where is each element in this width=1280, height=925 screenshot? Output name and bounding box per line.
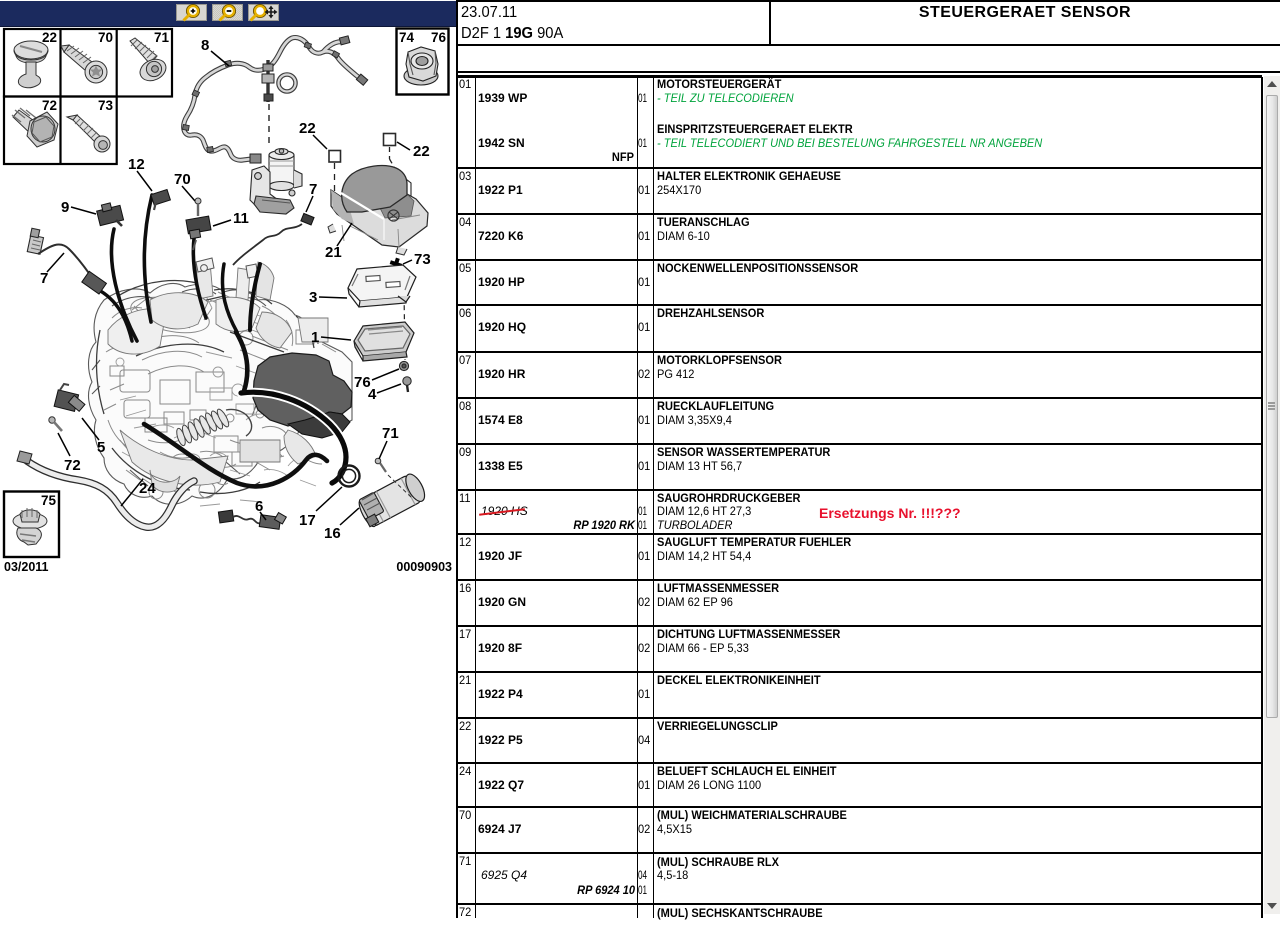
svg-text:22: 22 bbox=[299, 120, 316, 137]
svg-text:11: 11 bbox=[233, 210, 249, 227]
svg-text:8: 8 bbox=[201, 37, 209, 54]
svg-text:03/2011: 03/2011 bbox=[4, 560, 49, 574]
svg-text:1: 1 bbox=[311, 329, 319, 346]
svg-text:7: 7 bbox=[40, 270, 48, 287]
svg-text:16: 16 bbox=[324, 525, 341, 542]
svg-text:70: 70 bbox=[98, 30, 113, 45]
svg-text:76: 76 bbox=[431, 30, 447, 45]
svg-text:22: 22 bbox=[413, 143, 430, 160]
svg-text:71: 71 bbox=[154, 30, 170, 45]
svg-text:70: 70 bbox=[174, 171, 191, 188]
svg-text:00090903: 00090903 bbox=[396, 560, 452, 574]
svg-text:17: 17 bbox=[299, 512, 316, 529]
svg-text:3: 3 bbox=[309, 289, 317, 306]
svg-text:71: 71 bbox=[382, 425, 399, 442]
svg-text:22: 22 bbox=[42, 30, 57, 45]
svg-text:5: 5 bbox=[97, 439, 105, 456]
svg-text:24: 24 bbox=[139, 480, 156, 497]
svg-text:73: 73 bbox=[98, 98, 114, 113]
svg-text:4: 4 bbox=[368, 386, 377, 403]
svg-text:7: 7 bbox=[309, 181, 317, 198]
svg-text:73: 73 bbox=[414, 251, 431, 268]
svg-text:72: 72 bbox=[64, 457, 81, 474]
svg-text:9: 9 bbox=[61, 199, 69, 216]
svg-text:75: 75 bbox=[41, 493, 57, 508]
svg-text:12: 12 bbox=[128, 156, 145, 173]
svg-text:6: 6 bbox=[255, 498, 263, 515]
svg-text:74: 74 bbox=[399, 30, 415, 45]
svg-text:21: 21 bbox=[325, 244, 342, 261]
svg-text:72: 72 bbox=[42, 98, 57, 113]
